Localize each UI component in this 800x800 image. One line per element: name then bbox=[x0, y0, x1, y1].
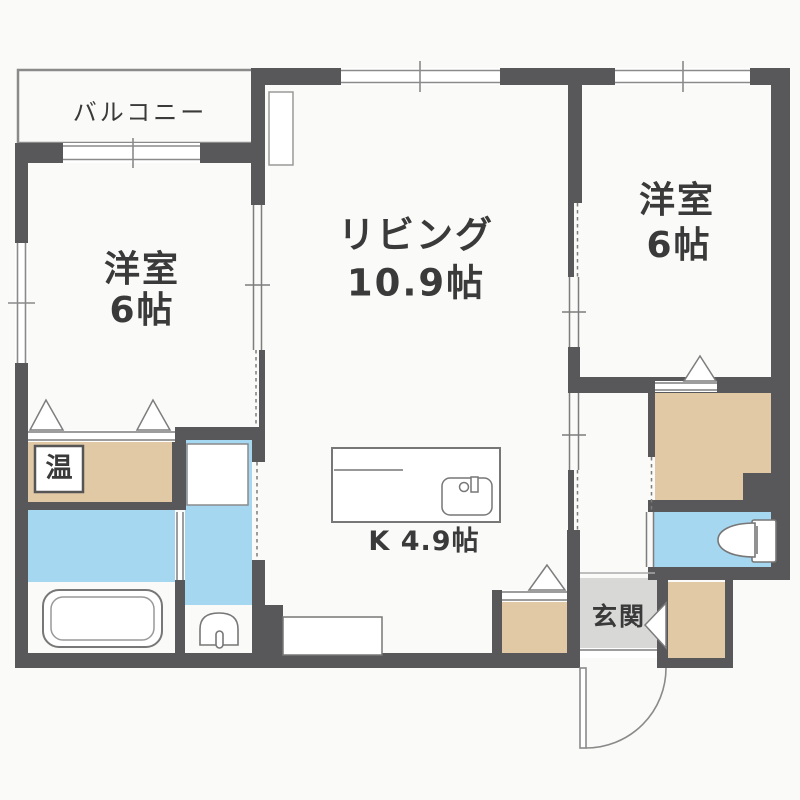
entrance-door bbox=[580, 668, 666, 748]
window-bedroom-right-top bbox=[615, 61, 750, 92]
washbasin-icon bbox=[200, 613, 238, 648]
entrance-sill bbox=[580, 648, 657, 658]
washing-machine-pan bbox=[187, 444, 248, 505]
closet-right-upper-fill bbox=[655, 392, 780, 473]
living-label: リビング bbox=[338, 217, 494, 256]
kitchen-cabinet bbox=[283, 617, 382, 655]
closet-track-bedroom-right bbox=[655, 381, 717, 392]
balcony-label: バルコニー bbox=[73, 100, 208, 125]
bedroom-right-size: 6帖 bbox=[646, 227, 711, 265]
floor-plan: バルコニー 洋室 6帖 リビング 10.9帖 洋室 6帖 K 4.9帖 玄関 温 bbox=[0, 0, 800, 800]
bedroom-left-label: 洋室 bbox=[104, 251, 180, 289]
closet-door-triangle-3 bbox=[684, 356, 716, 381]
shoe-closet-fill bbox=[668, 582, 725, 658]
kitchen-counter bbox=[332, 448, 500, 522]
bathroom-fill bbox=[28, 510, 175, 582]
window-living-top bbox=[341, 61, 500, 92]
closet-door-triangle-4 bbox=[529, 565, 565, 590]
pillar bbox=[269, 92, 293, 165]
closet-kitchen-fill bbox=[502, 600, 567, 657]
water-heater-label: 温 bbox=[46, 455, 73, 483]
entrance-label: 玄関 bbox=[592, 604, 646, 630]
bathtub-icon bbox=[43, 590, 162, 647]
window-bedroom-left-side bbox=[8, 243, 35, 363]
kitchen-label: K 4.9帖 bbox=[368, 528, 479, 556]
closet-right-lower-fill bbox=[655, 473, 743, 500]
bedroom-right-label: 洋室 bbox=[639, 182, 715, 220]
closet-track-kitchen bbox=[502, 590, 567, 602]
closet-track-bedroom-left bbox=[28, 430, 175, 442]
bedroom-left-size: 6帖 bbox=[109, 292, 174, 330]
closet-door-triangle-1 bbox=[30, 400, 63, 430]
closet-door-triangle-2 bbox=[137, 400, 170, 430]
living-size: 10.9帖 bbox=[347, 265, 485, 304]
